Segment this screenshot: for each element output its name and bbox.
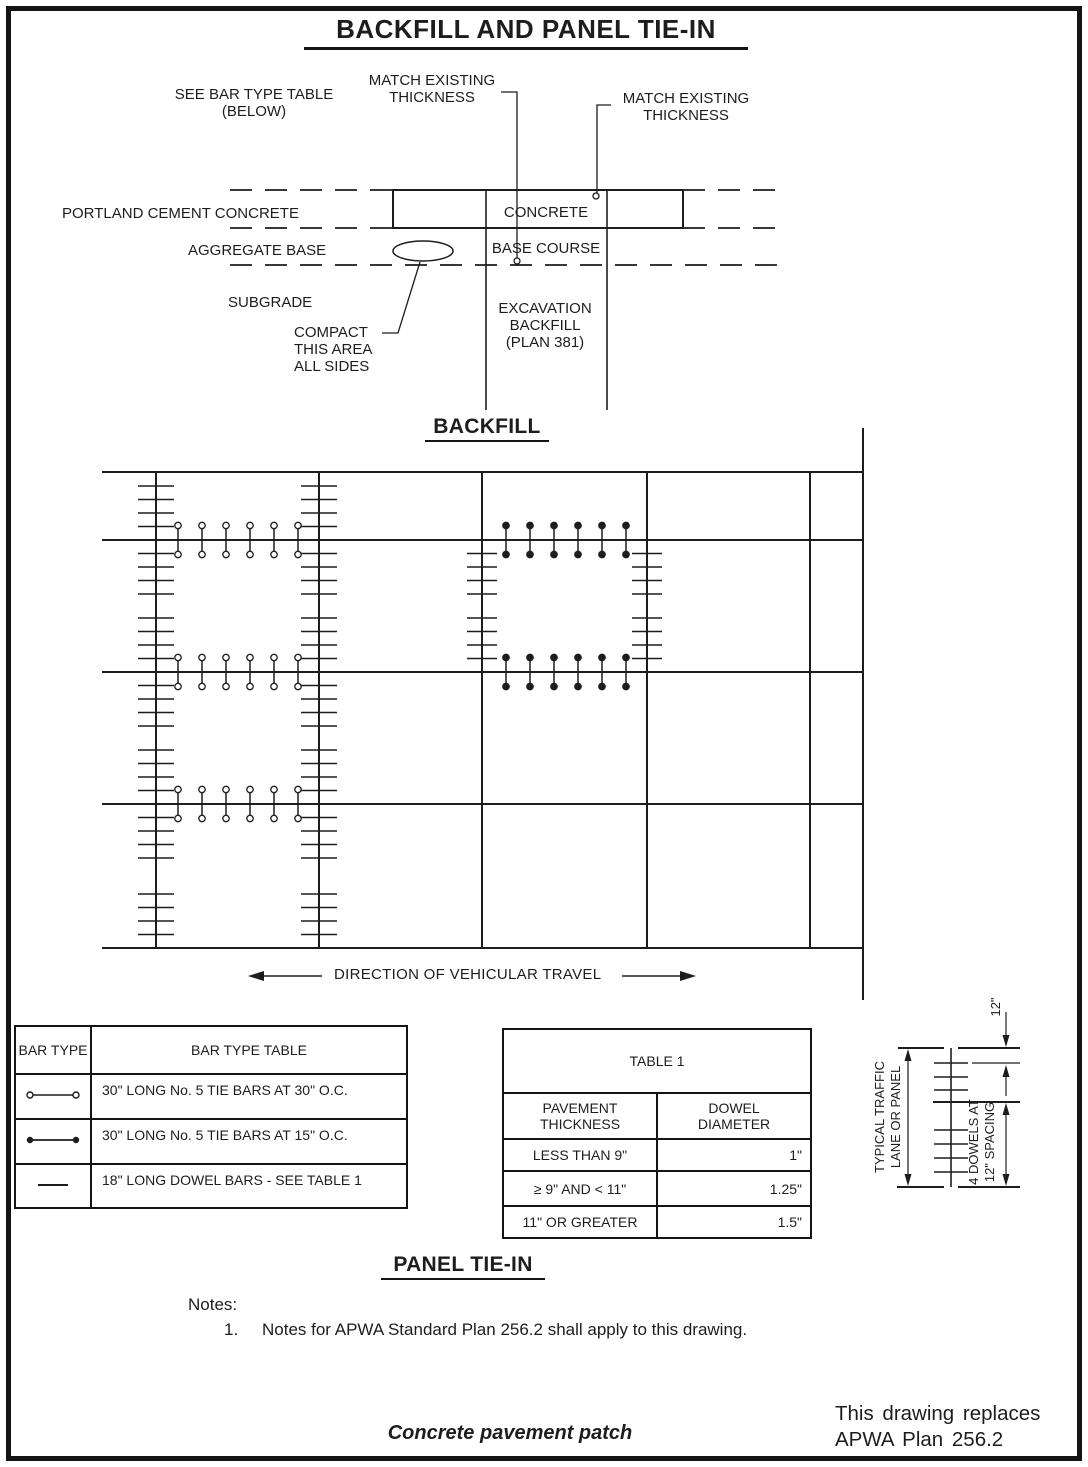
detail-label-dowels-line2: 12" SPACING	[982, 1102, 997, 1182]
dowel-group-dimension	[1003, 1103, 1010, 1186]
table-1: TABLE 1 PAVEMENT THICKNESS DOWEL DIAMETE…	[502, 1028, 812, 1239]
compact-this-area-label: COMPACT THIS AREA ALL SIDES	[294, 324, 380, 375]
tie-bar-open-end	[175, 786, 181, 792]
arrow-up-icon	[1003, 1103, 1010, 1115]
tie-bar-open-end	[271, 551, 277, 557]
dowel-diameter-value: 1.25"	[657, 1171, 811, 1206]
tie-bar-filled-end	[575, 551, 581, 557]
tie-bar-filled-end	[575, 654, 581, 660]
dowel-diameter-value: 1"	[657, 1139, 811, 1171]
leader-dot-2	[593, 193, 599, 199]
tie-bar-open-end	[247, 551, 253, 557]
tie-bar-open-end	[223, 654, 229, 660]
tie-bar-open-end	[295, 522, 301, 528]
pavement-thickness-header: PAVEMENT THICKNESS	[503, 1093, 657, 1139]
replacement-note: This drawing replaces APWA Plan 256.2	[835, 1401, 1040, 1453]
tie-bar-open-end	[199, 815, 205, 821]
aggregate-base-label: AGGREGATE BASE	[188, 242, 326, 259]
tie-bar-filled-end	[599, 522, 605, 528]
leader-dot-1	[514, 258, 520, 264]
direction-of-travel-label: DIRECTION OF VEHICULAR TRAVEL	[334, 966, 601, 983]
replacement-note-line1: This drawing replaces	[835, 1401, 1040, 1427]
tie-bar-open-end	[271, 815, 277, 821]
bar-type-desc: 30" LONG No. 5 TIE BARS AT 15" O.C.	[91, 1119, 407, 1164]
tie-bar-open-end	[295, 683, 301, 689]
pavement-thickness-value: ≥ 9" AND < 11"	[503, 1171, 657, 1206]
twelve-inch-dimension	[1003, 1012, 1010, 1096]
leader-match-existing-2	[597, 105, 611, 193]
tie-bar-filled-end	[527, 683, 533, 689]
detail-label-typical-line1: TYPICAL TRAFFIC	[872, 1061, 887, 1173]
dowel-diameter-header: DOWEL DIAMETER	[657, 1093, 811, 1139]
lane-dimension	[905, 1049, 912, 1186]
pavement-thickness-value: 11" OR GREATER	[503, 1206, 657, 1238]
tie-bar-open-end	[247, 683, 253, 689]
tie-bar-open-end	[247, 654, 253, 660]
pavement-thickness-value: LESS THAN 9"	[503, 1139, 657, 1171]
tie-bar-open-end	[295, 654, 301, 660]
bar-type-desc: 18" LONG DOWEL BARS - SEE TABLE 1	[91, 1164, 407, 1208]
tie-bar-open-end	[271, 522, 277, 528]
leader-match-existing-1	[501, 92, 517, 258]
tie-bar-open-end	[247, 786, 253, 792]
replacement-note-line2: APWA Plan 256.2	[835, 1427, 1040, 1453]
tie-bar-open-end	[175, 654, 181, 660]
subgrade-label: SUBGRADE	[228, 294, 312, 311]
tie-bar-open-end	[175, 683, 181, 689]
drawing-sheet: TYPICAL TRAFFIC LANE OR PANEL 12" 4 DOWE…	[0, 0, 1088, 1467]
panel-tie-in-heading: PANEL TIE-IN	[381, 1253, 545, 1280]
arrow-down-icon	[905, 1174, 912, 1186]
tie-bar-open-end	[199, 551, 205, 557]
arrow-down-icon	[1003, 1035, 1010, 1047]
table-row: ≥ 9" AND < 11" 1.25"	[503, 1171, 811, 1206]
direction-arrow-right-head	[680, 971, 696, 981]
table-row: 30" LONG No. 5 TIE BARS AT 30" O.C.	[15, 1074, 407, 1119]
table-row: 11" OR GREATER 1.5"	[503, 1206, 811, 1238]
tie-bar-filled-end	[599, 654, 605, 660]
compact-area-leader	[382, 262, 420, 333]
plan-view-figure	[102, 428, 863, 1000]
tie-bar-filled-end	[623, 654, 629, 660]
page-title: BACKFILL AND PANEL TIE-IN	[304, 14, 748, 50]
arrow-up-icon	[905, 1049, 912, 1061]
table-row: LESS THAN 9" 1"	[503, 1139, 811, 1171]
tie-bar-filled-end	[527, 551, 533, 557]
arrow-down-icon	[1003, 1174, 1010, 1186]
note-number: 1.	[224, 1320, 238, 1340]
base-course-label: BASE COURSE	[490, 240, 602, 257]
detail-label-12in: 12"	[988, 997, 1003, 1016]
tie-bar-open-end	[175, 815, 181, 821]
tie-bar-filled-end	[527, 522, 533, 528]
tie-bar-open-end	[223, 551, 229, 557]
tie-bar-filled-end	[503, 522, 509, 528]
detail-label-typical-line2: LANE OR PANEL	[888, 1066, 903, 1168]
tie-bar-open-end	[271, 683, 277, 689]
tie-bar-open-end	[223, 786, 229, 792]
tie-bar-filled-end	[599, 551, 605, 557]
concrete-label: CONCRETE	[496, 204, 596, 221]
tie-bar-filled-end	[503, 683, 509, 689]
tie-bar-open-end	[199, 683, 205, 689]
tie-bar-open-end	[295, 551, 301, 557]
dowel-bar-symbol-icon	[21, 1178, 85, 1192]
table-row: 18" LONG DOWEL BARS - SEE TABLE 1	[15, 1164, 407, 1208]
tie-bar-filled-end	[527, 654, 533, 660]
bar-type-table-title: BAR TYPE TABLE	[91, 1026, 407, 1074]
plan-bars	[138, 486, 662, 935]
tie-bar-open-end	[247, 815, 253, 821]
tie-bar-open-end	[295, 815, 301, 821]
tie-bar-filled-end	[575, 522, 581, 528]
drawing-title: Concrete pavement patch	[330, 1422, 690, 1445]
tie-bar-filled-end	[623, 683, 629, 689]
tie-bar-filled-end	[503, 551, 509, 557]
tie-bar-open-end	[199, 522, 205, 528]
see-bar-type-table-label: SEE BAR TYPE TABLE (BELOW)	[168, 86, 340, 120]
tie-bar-open-symbol-icon	[21, 1088, 85, 1102]
excavation-backfill-label: EXCAVATION BACKFILL (PLAN 381)	[489, 300, 601, 351]
dowel-diameter-value: 1.5"	[657, 1206, 811, 1238]
tie-bar-filled-end	[575, 683, 581, 689]
tie-bar-open-end	[223, 683, 229, 689]
tie-bar-open-end	[271, 786, 277, 792]
tie-bar-open-end	[199, 786, 205, 792]
tie-bar-filled-end	[551, 551, 557, 557]
backfill-heading: BACKFILL	[425, 415, 549, 442]
table-row: 30" LONG No. 5 TIE BARS AT 15" O.C.	[15, 1119, 407, 1164]
tie-bar-open-end	[175, 522, 181, 528]
note-text: Notes for APWA Standard Plan 256.2 shall…	[262, 1320, 747, 1340]
direction-arrow-left-head	[248, 971, 264, 981]
tie-bar-filled-end	[623, 522, 629, 528]
tie-bar-open-end	[199, 654, 205, 660]
tie-bar-filled-end	[503, 654, 509, 660]
tie-bar-filled-symbol-icon	[21, 1133, 85, 1147]
match-existing-thickness-label-2: MATCH EXISTING THICKNESS	[620, 90, 752, 124]
compact-area-ellipse	[393, 241, 453, 261]
match-existing-thickness-label-1: MATCH EXISTING THICKNESS	[366, 72, 498, 106]
tie-bar-open-end	[271, 654, 277, 660]
table1-title: TABLE 1	[503, 1029, 811, 1093]
tie-bar-filled-end	[551, 654, 557, 660]
tie-bar-open-end	[175, 551, 181, 557]
bar-type-table: BAR TYPE BAR TYPE TABLE 30" LONG No. 5 T…	[14, 1025, 408, 1209]
portland-cement-concrete-label: PORTLAND CEMENT CONCRETE	[62, 205, 299, 222]
tie-bar-filled-end	[551, 522, 557, 528]
bar-type-desc: 30" LONG No. 5 TIE BARS AT 30" O.C.	[91, 1074, 407, 1119]
bar-type-col-header: BAR TYPE	[15, 1026, 91, 1074]
dowel-spacing-detail-figure: TYPICAL TRAFFIC LANE OR PANEL 12" 4 DOWE…	[872, 997, 1020, 1187]
arrow-up-icon	[1003, 1065, 1010, 1077]
tie-bar-open-end	[223, 522, 229, 528]
tie-bar-filled-end	[551, 683, 557, 689]
tie-bar-filled-end	[623, 551, 629, 557]
tie-bar-open-end	[223, 815, 229, 821]
tie-bar-filled-end	[599, 683, 605, 689]
notes-heading: Notes:	[188, 1295, 237, 1315]
tie-bar-open-end	[295, 786, 301, 792]
detail-label-dowels-line1: 4 DOWELS AT	[966, 1099, 981, 1185]
tie-bar-open-end	[247, 522, 253, 528]
